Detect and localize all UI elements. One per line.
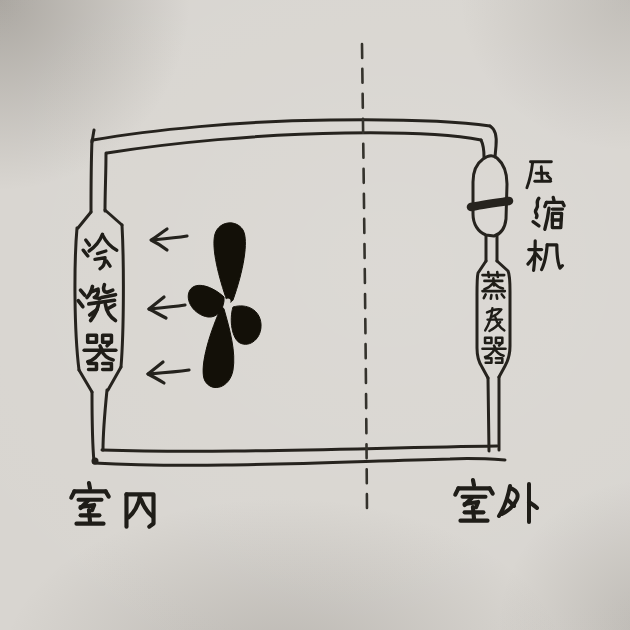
divider-dashed-line xyxy=(362,44,367,512)
outdoor-label-glyphs xyxy=(455,480,537,522)
pipe-circuit xyxy=(91,120,505,466)
condenser-label-glyphs xyxy=(78,234,117,369)
indoor-label-glyphs xyxy=(71,483,153,527)
evaporator-label-glyphs xyxy=(482,272,505,363)
left-arrow-icon xyxy=(148,362,189,383)
airflow-arrows xyxy=(148,229,189,383)
compressor-label-glyphs xyxy=(527,162,564,271)
left-arrow-icon xyxy=(151,229,187,250)
fan-propeller-icon xyxy=(188,223,261,388)
left-arrow-icon xyxy=(149,297,185,318)
sketch-canvas: 冷凝器 压缩机 蒸发器 室内 室外 xyxy=(0,0,630,630)
compressor-band xyxy=(471,201,509,207)
compressor-shape xyxy=(471,156,509,236)
diagram-drawing xyxy=(0,0,630,630)
